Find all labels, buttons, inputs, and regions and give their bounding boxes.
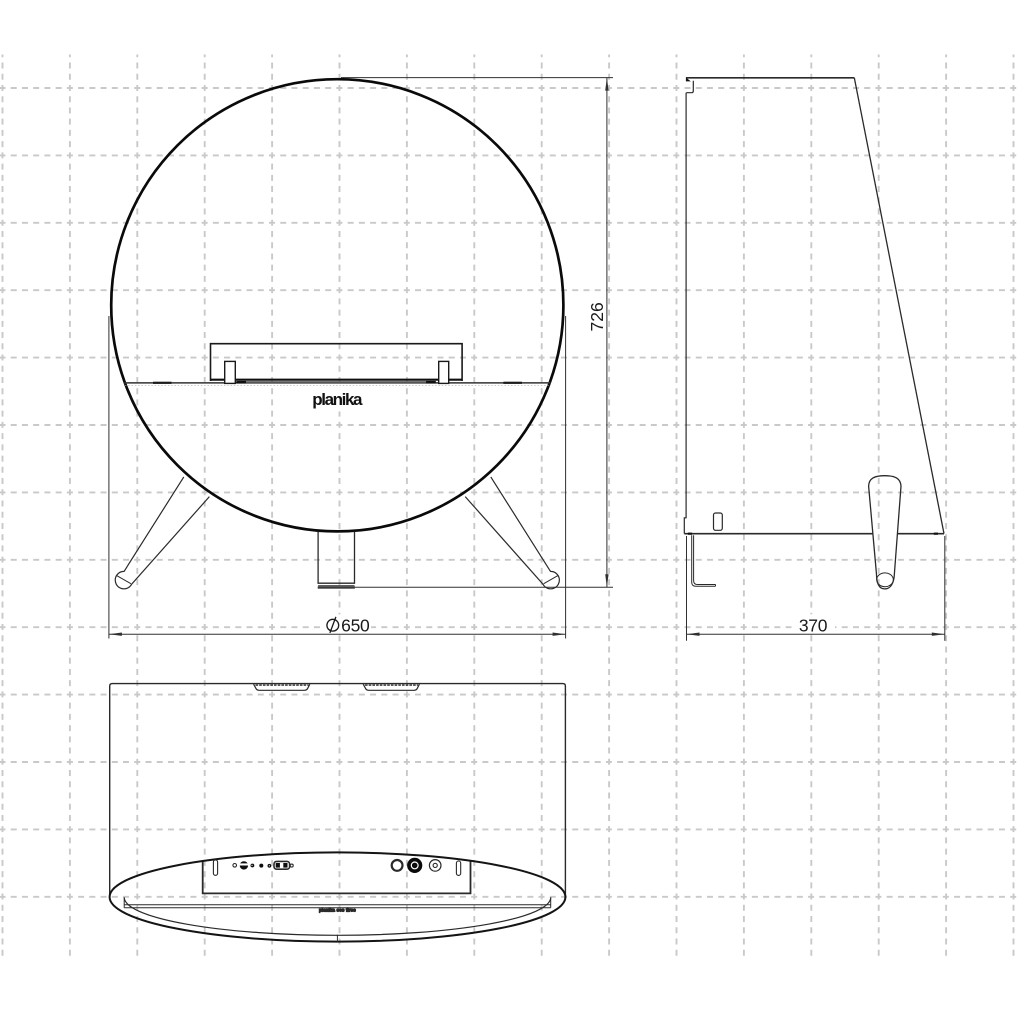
svg-text:planika: planika <box>312 390 363 409</box>
svg-text:370: 370 <box>799 616 828 636</box>
svg-text:650: 650 <box>341 616 370 636</box>
svg-text:726: 726 <box>587 302 607 331</box>
svg-text:planika eco fires: planika eco fires <box>319 907 356 912</box>
